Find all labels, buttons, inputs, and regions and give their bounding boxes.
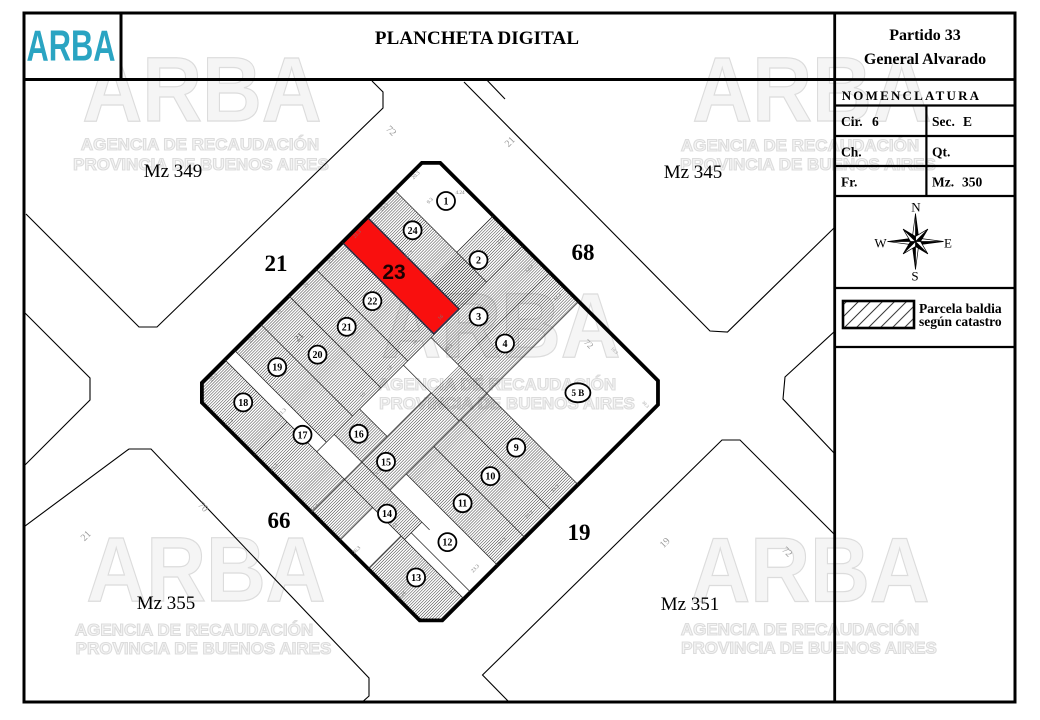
svg-text:ARBA: ARBA: [690, 518, 929, 621]
svg-text:13: 13: [411, 573, 421, 584]
svg-text:19: 19: [272, 363, 282, 374]
svg-text:Fr.: Fr.: [841, 175, 857, 190]
svg-text:Mz 349: Mz 349: [144, 161, 203, 182]
svg-text:Mz 351: Mz 351: [661, 594, 720, 615]
svg-text:AGENCIA DE RECAUDACIÓN: AGENCIA DE RECAUDACIÓN: [681, 620, 919, 639]
svg-text:General Alvarado: General Alvarado: [864, 51, 986, 68]
svg-text:11: 11: [458, 499, 467, 510]
svg-text:según catastro: según catastro: [919, 314, 1002, 329]
svg-text:Partido 33: Partido 33: [889, 27, 961, 44]
svg-text:4.24: 4.24: [455, 190, 464, 196]
svg-text:23: 23: [382, 261, 405, 284]
svg-text:NOMENCLATURA: NOMENCLATURA: [842, 88, 982, 103]
svg-text:12: 12: [442, 538, 452, 549]
svg-text:Qt.: Qt.: [932, 145, 950, 160]
svg-text:PROVINCIA DE BUENOS AIRES: PROVINCIA DE BUENOS AIRES: [76, 639, 332, 658]
svg-text:Mz 345: Mz 345: [664, 162, 723, 183]
svg-text:AGENCIA DE RECAUDACIÓN: AGENCIA DE RECAUDACIÓN: [75, 621, 313, 640]
svg-text:W: W: [874, 236, 887, 251]
svg-text:20: 20: [313, 350, 323, 361]
svg-text:Cir.: Cir.: [841, 114, 863, 129]
svg-text:3: 3: [476, 312, 481, 323]
svg-text:AGENCIA DE RECAUDACIÓN: AGENCIA DE RECAUDACIÓN: [681, 136, 919, 155]
svg-text:16: 16: [354, 429, 364, 440]
svg-text:4: 4: [503, 339, 508, 350]
svg-text:AGENCIA DE RECAUDACIÓN: AGENCIA DE RECAUDACIÓN: [81, 135, 319, 154]
svg-text:68: 68: [572, 240, 595, 265]
svg-text:PLANCHETA DIGITAL: PLANCHETA DIGITAL: [375, 28, 579, 49]
svg-text:Mz.: Mz.: [932, 175, 954, 190]
svg-text:66: 66: [268, 508, 291, 533]
svg-text:5 B: 5 B: [572, 388, 585, 398]
svg-text:1: 1: [444, 197, 449, 208]
svg-text:2: 2: [476, 256, 481, 267]
svg-text:17: 17: [298, 430, 308, 441]
svg-text:E: E: [963, 114, 972, 129]
svg-text:N: N: [911, 200, 921, 215]
svg-text:ARBA: ARBA: [27, 22, 116, 71]
svg-text:350: 350: [962, 175, 983, 190]
svg-text:E: E: [944, 236, 952, 251]
svg-text:10: 10: [485, 472, 495, 483]
svg-text:ARBA: ARBA: [86, 518, 325, 621]
svg-text:14: 14: [382, 509, 392, 520]
svg-text:Mz 355: Mz 355: [137, 593, 196, 614]
svg-text:21: 21: [265, 251, 288, 276]
svg-text:22: 22: [367, 297, 377, 308]
svg-text:21: 21: [342, 322, 352, 333]
svg-text:Sec.: Sec.: [932, 114, 955, 129]
svg-text:S: S: [911, 269, 918, 284]
svg-text:24: 24: [408, 226, 418, 237]
svg-text:6: 6: [872, 114, 879, 129]
svg-text:Ch.: Ch.: [841, 145, 862, 160]
svg-text:19: 19: [568, 520, 591, 545]
svg-text:9: 9: [514, 443, 519, 454]
svg-text:15: 15: [381, 457, 391, 468]
svg-text:PROVINCIA DE BUENOS AIRES: PROVINCIA DE BUENOS AIRES: [681, 639, 937, 658]
svg-text:18: 18: [238, 398, 248, 409]
